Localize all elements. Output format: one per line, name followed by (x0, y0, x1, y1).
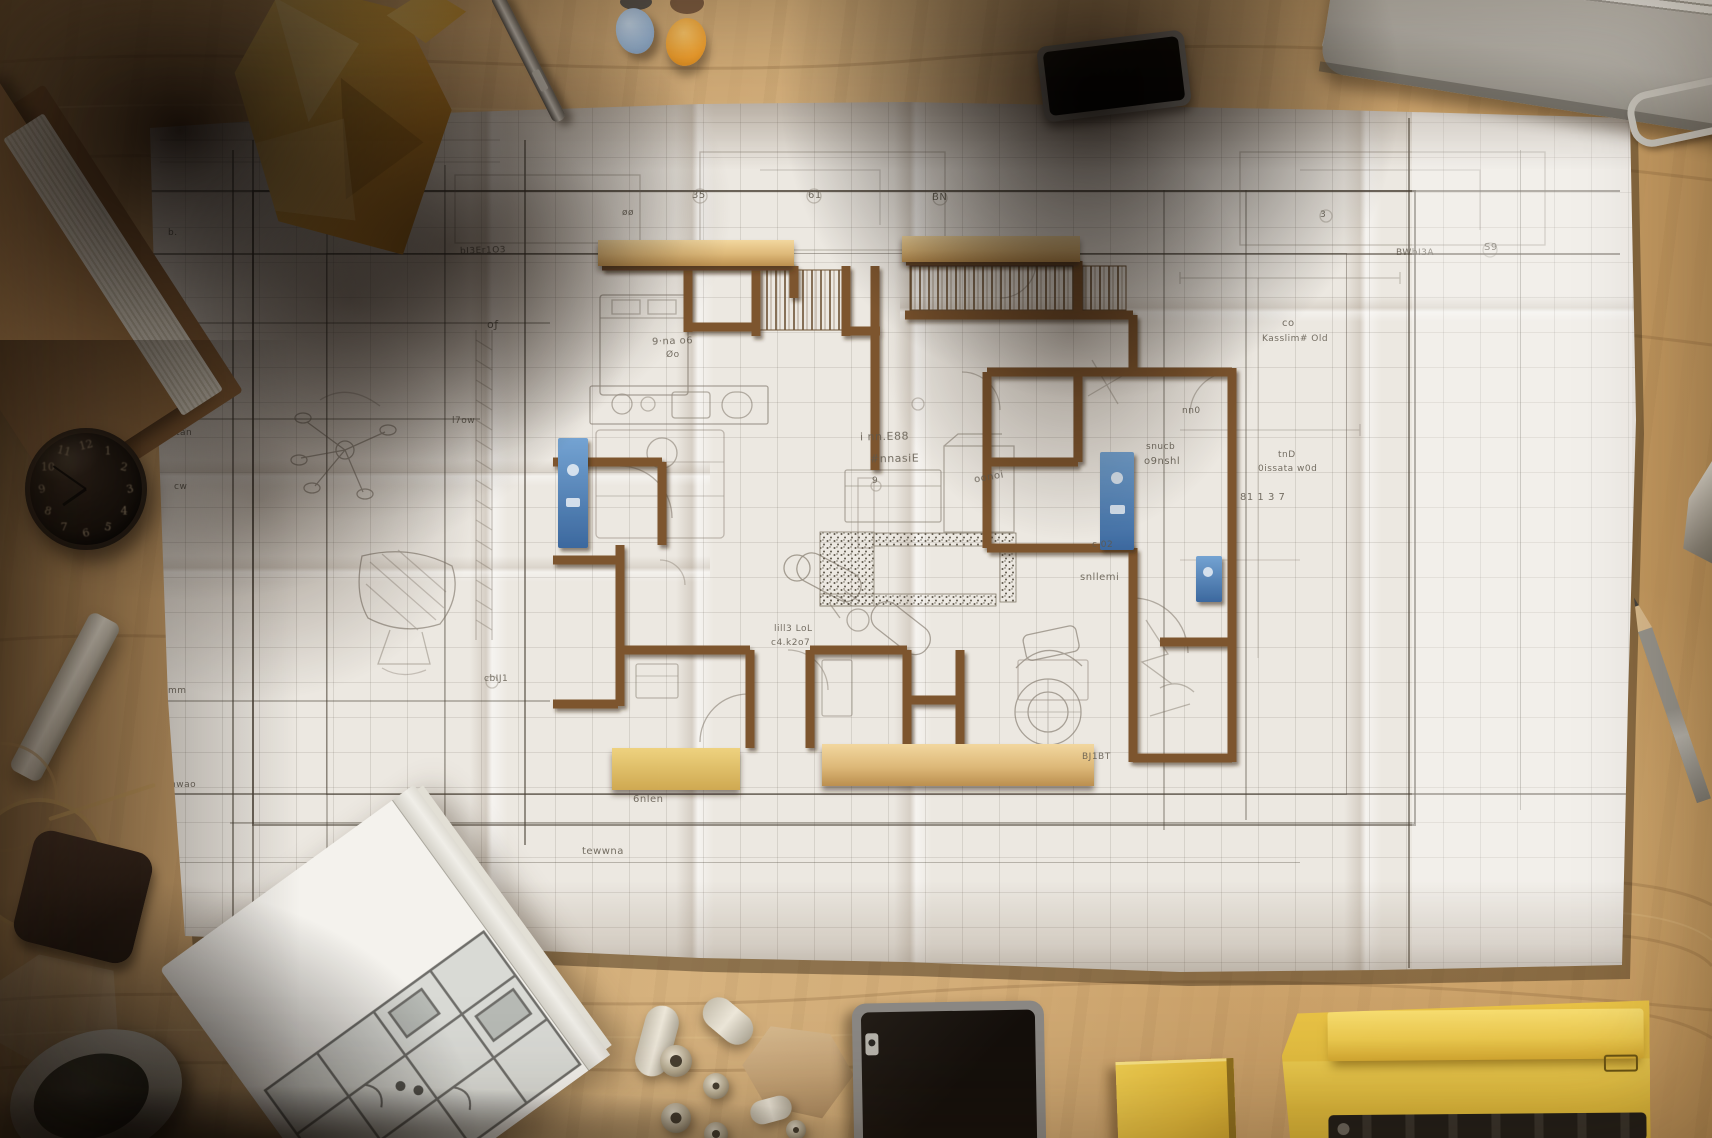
desk-scene: bI3Er1O3oƒl7ow9·na o6Øoi nn.E88#nnasiE9o… (0, 0, 1712, 1138)
vignette (0, 0, 1712, 1138)
